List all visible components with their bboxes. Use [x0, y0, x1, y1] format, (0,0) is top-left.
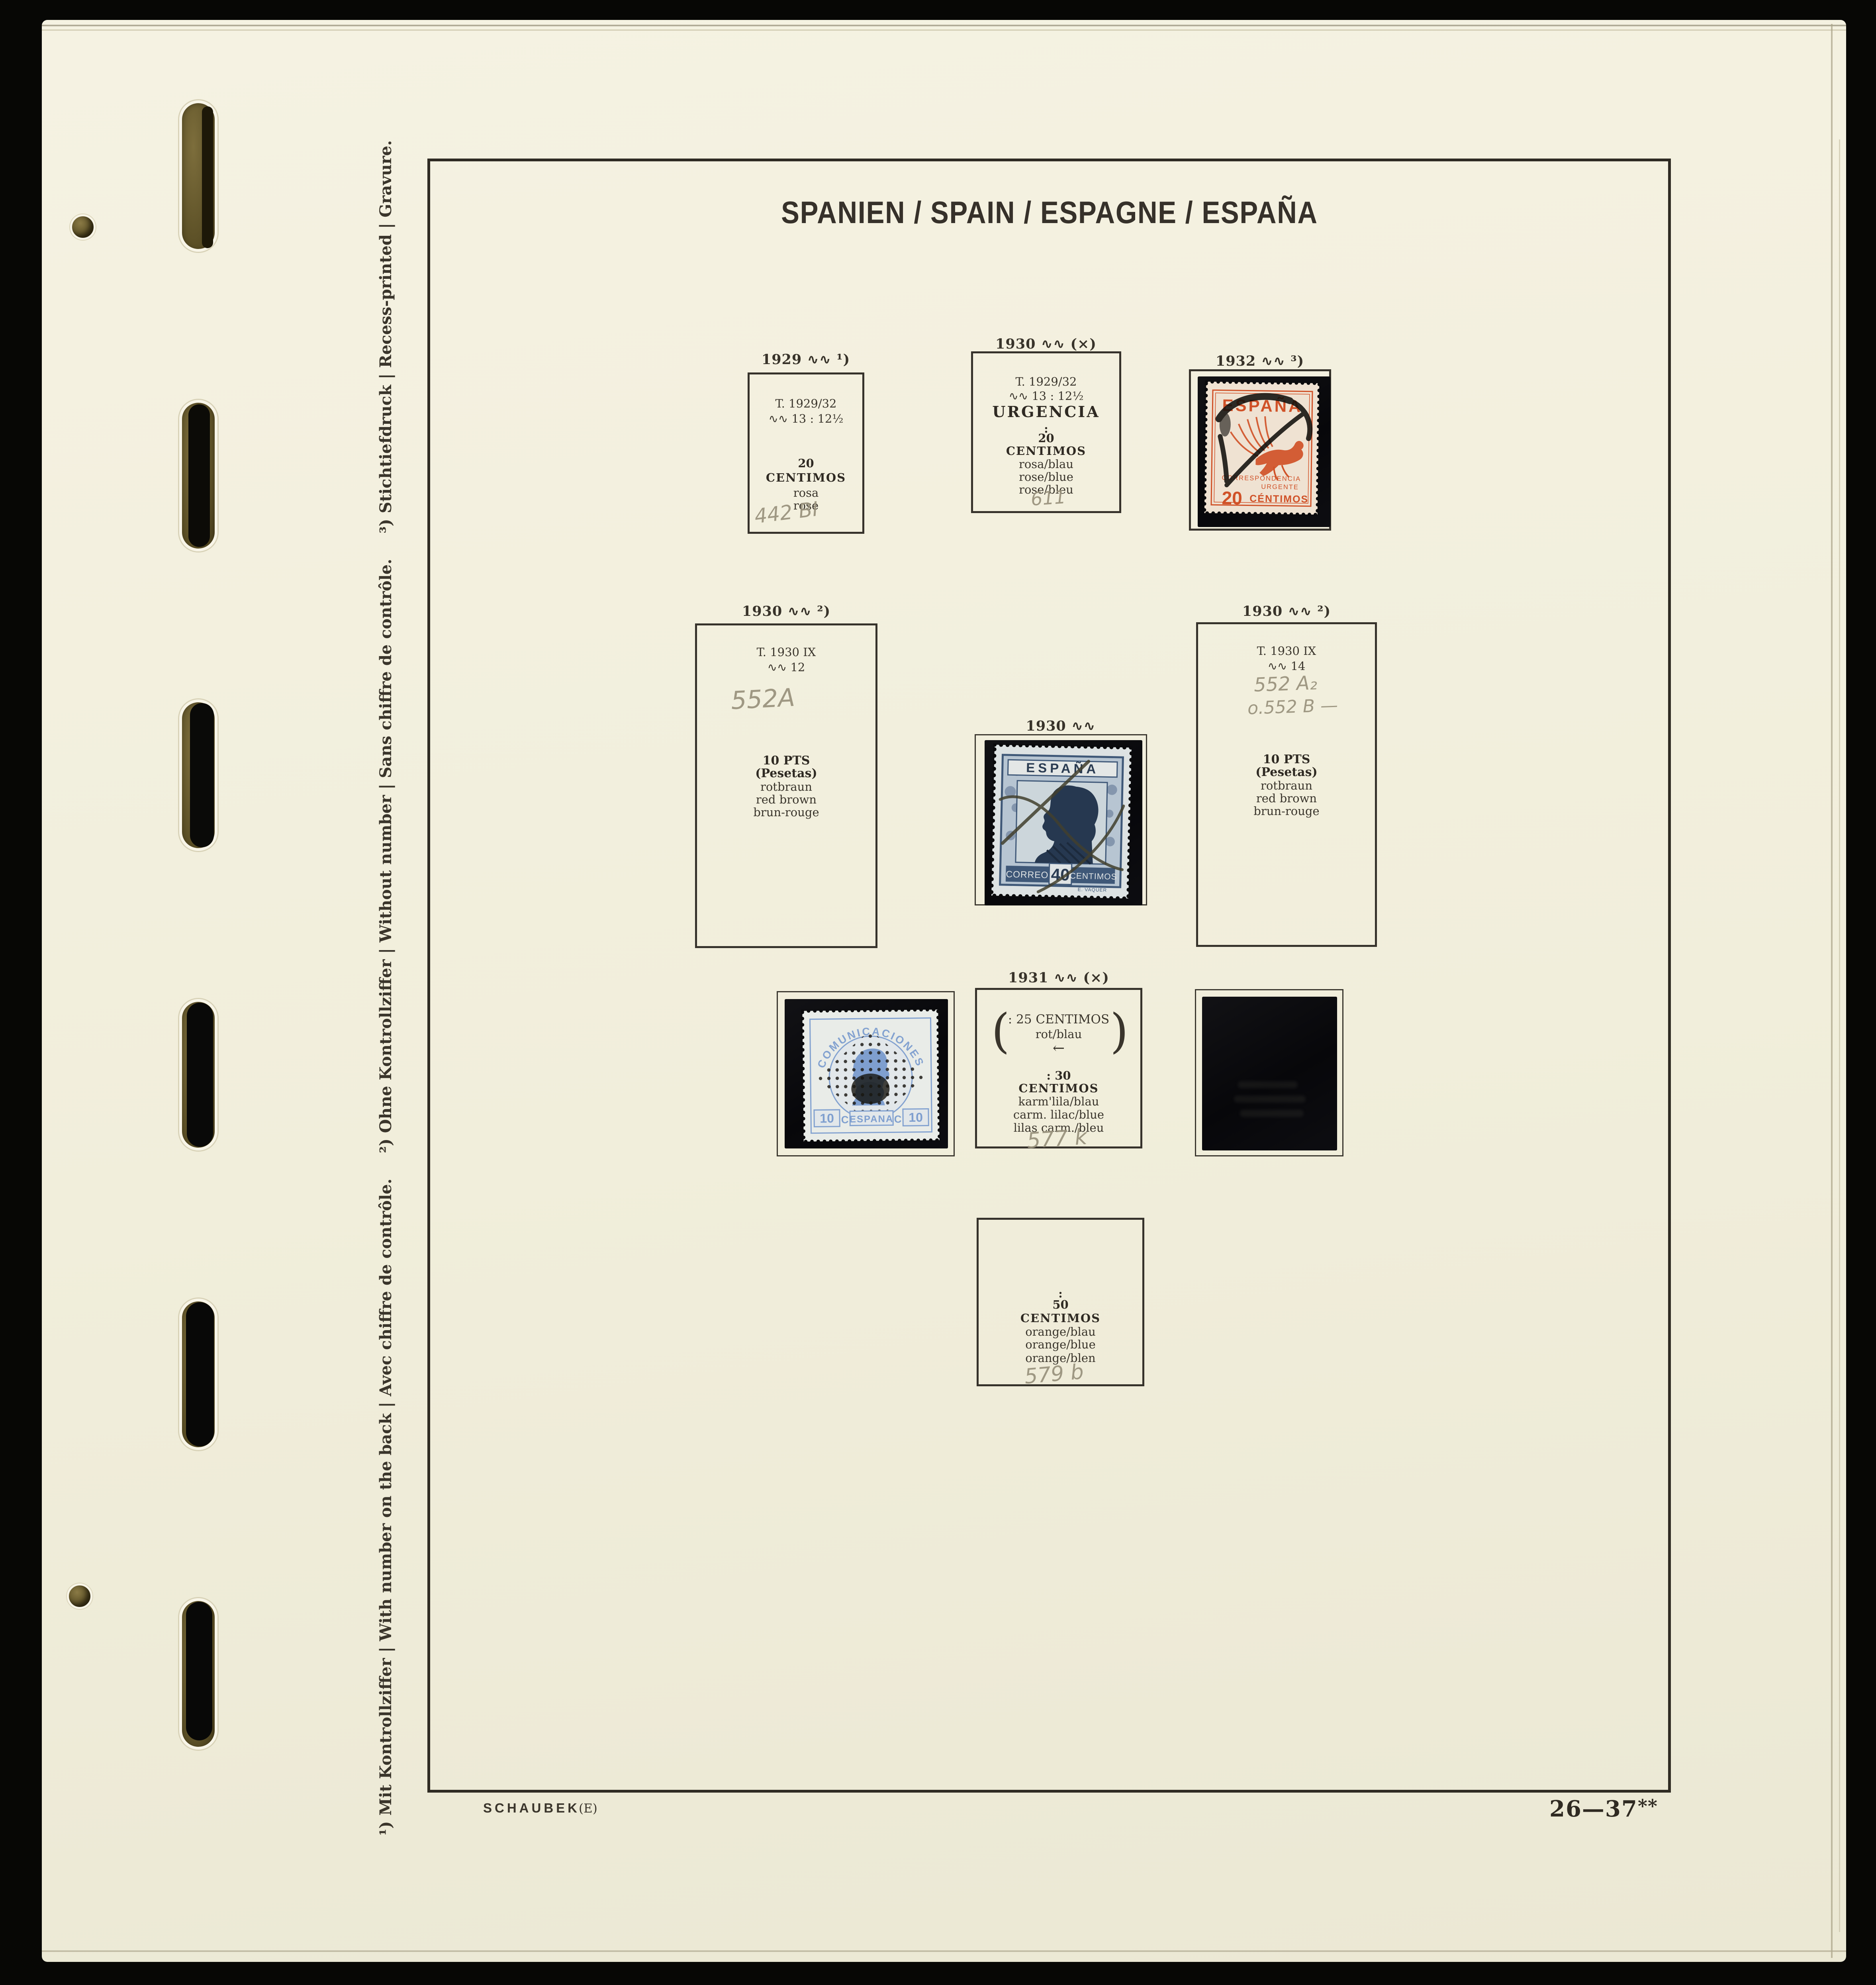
color-de: rosa: [750, 486, 862, 500]
pencil-note-552b: o.552 B —: [1247, 695, 1338, 719]
color-de: rosa/blau: [973, 457, 1119, 471]
stamp-country-label: ESPANA: [850, 1113, 894, 1125]
binder-slot-4: [179, 999, 217, 1150]
type-line: T. 1929/32: [973, 375, 1119, 388]
color-fr: brun-rouge: [697, 805, 875, 819]
binder-slot-5: [179, 1299, 217, 1450]
type-line: T. 1930 IX: [697, 645, 875, 659]
label-box-1930-perf14: T. 1930 IX ∿∿ 14 552 A₂ o.552 B — 10 PTS…: [1196, 622, 1377, 947]
stamp-c-right: C: [894, 1113, 902, 1125]
pencil-note-552a2: 552 A₂: [1253, 672, 1318, 696]
type-line: T. 1930 IX: [1198, 644, 1375, 658]
caption-1931: 1931 ∿∿ (×): [1008, 970, 1109, 986]
caption-1930-perf12: 1930 ∿∿ ²): [742, 603, 830, 619]
page-stack-edge-right1: [1831, 24, 1833, 1958]
unit-line: (Pesetas): [1198, 765, 1375, 779]
color-de: karm'lila/blau: [977, 1095, 1140, 1108]
caption-1929: 1929 ∿∿ ¹): [762, 351, 850, 368]
page-title: SPANIEN / SPAIN / ESPAGNE / ESPAÑA: [744, 194, 1354, 231]
stamp-value-left: 10: [820, 1111, 834, 1125]
page-number: 26—37: [1549, 1796, 1638, 1822]
value-line: 50: [979, 1298, 1142, 1311]
ref-line: : 25 CENTIMOS: [977, 1012, 1140, 1027]
perf-line: ∿∿ 12: [697, 660, 875, 674]
black-mount-stamp: [1202, 997, 1337, 1150]
value-line: 20: [973, 431, 1119, 445]
punch-hole-bottom: [67, 1583, 92, 1609]
stamp-unit: CÉNTIMOS: [1249, 493, 1308, 505]
page-stack-edge-top1: [42, 25, 1846, 26]
page-stack-edge-right2: [1839, 139, 1840, 1932]
color-de: orange/blau: [979, 1325, 1142, 1338]
engraver-signature: E. VAQUER: [1078, 887, 1107, 893]
color-en: red brown: [1198, 792, 1375, 805]
unit-line: CENTIMOS: [977, 1082, 1140, 1095]
unit-line: CENTIMOS: [973, 444, 1119, 458]
stamp-value-right: 10: [909, 1110, 923, 1125]
color-de: rotbraun: [697, 780, 875, 794]
left-arrow-icon: ←: [977, 1040, 1140, 1056]
pencil-note-611: 611: [1030, 486, 1066, 510]
unit-line: (Pesetas): [697, 766, 875, 780]
binder-slot-2: [179, 400, 217, 551]
caption-1930-perf14: 1930 ∿∿ ²): [1242, 603, 1331, 619]
color-en: rose/blue: [973, 470, 1119, 484]
ref-color: rot/blau: [977, 1027, 1140, 1041]
value-line: 10 PTS: [1198, 752, 1375, 766]
color-en: orange/blue: [979, 1338, 1142, 1351]
color-fr: brun-rouge: [1198, 804, 1375, 818]
page-stack-edge-top2: [42, 29, 1846, 31]
type-line: T. 1929/32: [750, 397, 862, 410]
stamp-1872-amadeo: COMUNICACIONES 10 C ESPANA C 10: [801, 1008, 940, 1143]
binder-slot-1: [179, 100, 217, 252]
caption-1930-urgencia: 1930 ∿∿ (×): [995, 336, 1097, 352]
value-line: : 30: [977, 1069, 1140, 1082]
footnote-2: ²) Ohne Kontrollziffer | Without number …: [376, 559, 395, 1153]
pencil-note-579b: 579 b: [1024, 1360, 1085, 1389]
footer-publisher: SCHAUBEK: [483, 1801, 580, 1816]
label-box-1930-perf12: T. 1930 IX ∿∿ 12 552A 10 PTS (Pesetas) r…: [695, 623, 877, 948]
stamp-1930-alfonso: ESPAÑA CORREOS 40 CENTIMOS E. VAQUER: [990, 743, 1133, 899]
binder-slot-3: [179, 700, 217, 851]
color-en: carm. lilac/blue: [977, 1108, 1140, 1121]
stamp-c-left: C: [841, 1114, 849, 1126]
footnote-column: ¹) Mit Kontrollziffer | With number on t…: [370, 279, 401, 1697]
footnote-3: ³) Stichtiefdruck | Recess-printed | Gra…: [376, 140, 395, 533]
color-en: red brown: [697, 793, 875, 806]
punch-hole-top: [70, 214, 96, 240]
photo-background: ¹) Mit Kontrollziffer | With number on t…: [0, 0, 1876, 1985]
footer-page-number: 26—37**: [1549, 1796, 1658, 1822]
stamp-centimos-label: CENTIMOS: [1069, 871, 1117, 881]
page-number-suffix: **: [1638, 1795, 1658, 1817]
value-line: 10 PTS: [697, 754, 875, 768]
unit-line: CENTIMOS: [750, 471, 862, 484]
pencil-note-577k: 577 k: [1026, 1124, 1088, 1153]
perf-line: ∿∿ 13 : 12½: [973, 389, 1119, 403]
page-stack-edge-bottom: [42, 1950, 1846, 1952]
label-box-1929: T. 1929/32 ∿∿ 13 : 12½ 20 CENTIMOS rosa …: [748, 372, 864, 534]
color-de: rotbraun: [1198, 779, 1375, 792]
stamp-1932-pegasus: ESPAÑA CORRESPONDENCIA URGENTE 20 CÉNTIM…: [1203, 380, 1321, 516]
footnote-1: ¹) Mit Kontrollziffer | With number on t…: [376, 1179, 395, 1836]
pencil-note-552a: 552A: [730, 683, 795, 715]
stamp-value: 20: [1222, 488, 1242, 509]
caption-1932: 1932 ∿∿ ³): [1216, 353, 1304, 369]
stamp-correos-label: CORREOS: [1006, 869, 1055, 880]
caption-1930-stamp: 1930 ∿∿: [1026, 718, 1095, 734]
perf-line: ∿∿ 14: [1198, 659, 1375, 673]
label-box-1931: ( ) : 25 CENTIMOS rot/blau ← : 30 CENTIM…: [975, 988, 1142, 1148]
value-line: 20: [750, 457, 862, 470]
footer-edition-mark: (E): [579, 1801, 597, 1816]
binder-slot-6: [179, 1598, 217, 1750]
label-box-50c: : 50 CENTIMOS orange/blau orange/blue or…: [977, 1218, 1144, 1386]
perf-line: ∿∿ 13 : 12½: [750, 412, 862, 425]
album-page: ¹) Mit Kontrollziffer | With number on t…: [42, 20, 1846, 1962]
label-box-1930-urgencia: T. 1929/32 ∿∿ 13 : 12½ URGENCIA : 20 CEN…: [971, 351, 1121, 513]
stamp-band2: URGENTE: [1261, 483, 1299, 491]
series-name: URGENCIA: [973, 403, 1119, 421]
unit-line: CENTIMOS: [979, 1311, 1142, 1325]
